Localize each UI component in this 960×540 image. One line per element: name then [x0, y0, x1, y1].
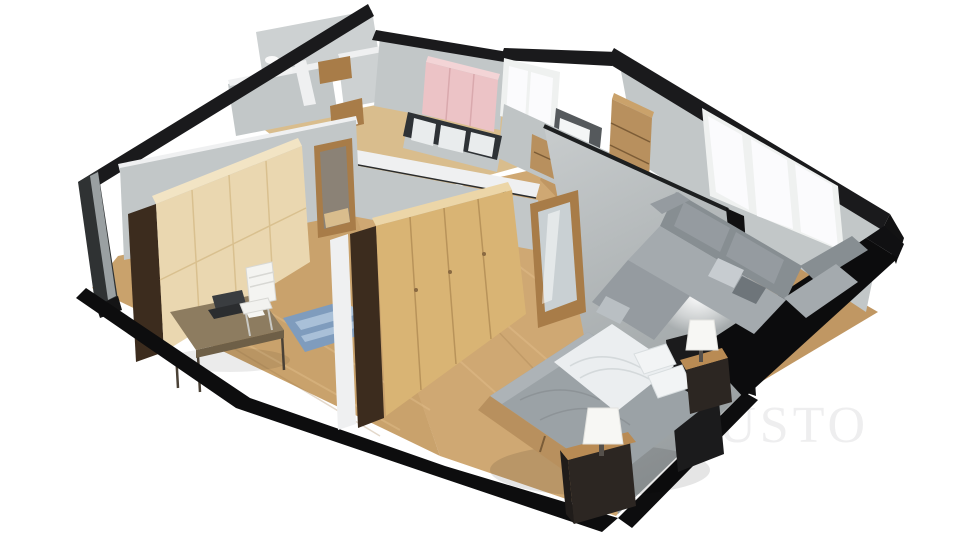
wardrobe-knob [414, 288, 418, 292]
wardrobe-knob [482, 252, 486, 256]
floorplan-svg: JUSTO [0, 0, 960, 540]
table-lamp-back [686, 320, 718, 350]
floorplan-render: JUSTO [0, 0, 960, 540]
lamp-back-stem [699, 350, 703, 362]
wardrobe-knob [448, 270, 452, 274]
table-lamp-front [583, 408, 623, 444]
